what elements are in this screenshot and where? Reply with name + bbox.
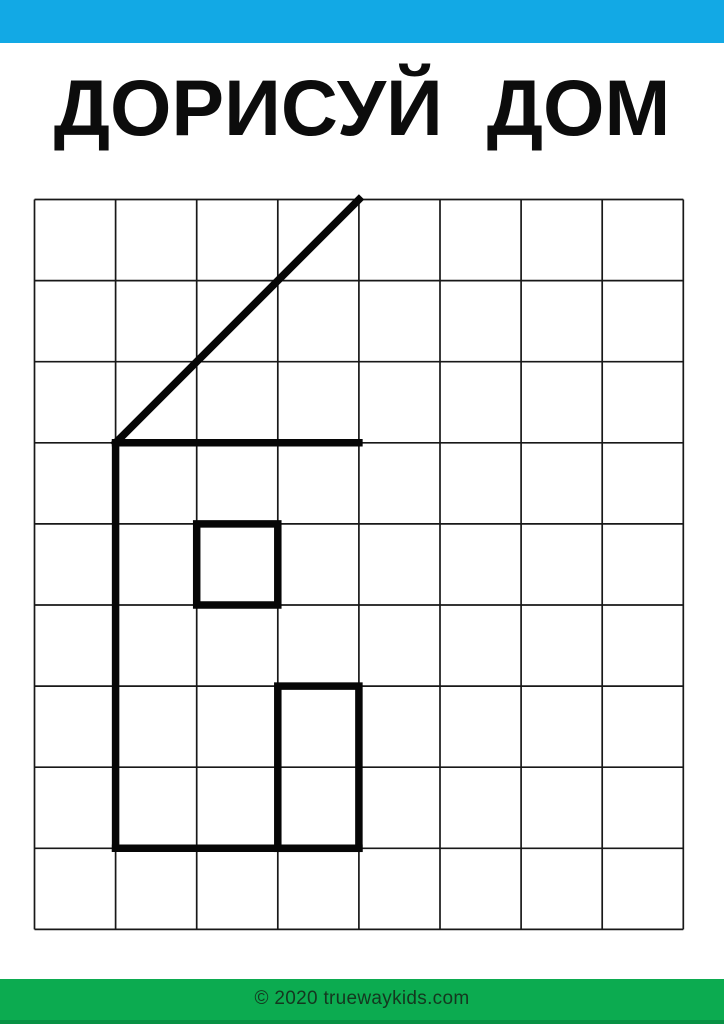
roof-diagonal-line	[116, 200, 359, 443]
worksheet-page: ДОРИСУЙ ДОМ © 2020 truewaykids.com	[0, 0, 724, 1024]
footer-bar: © 2020 truewaykids.com	[0, 979, 724, 1024]
copyright-text: © 2020 truewaykids.com	[255, 988, 470, 1010]
worksheet-grid-svg	[0, 0, 724, 1024]
window-square	[197, 524, 278, 605]
